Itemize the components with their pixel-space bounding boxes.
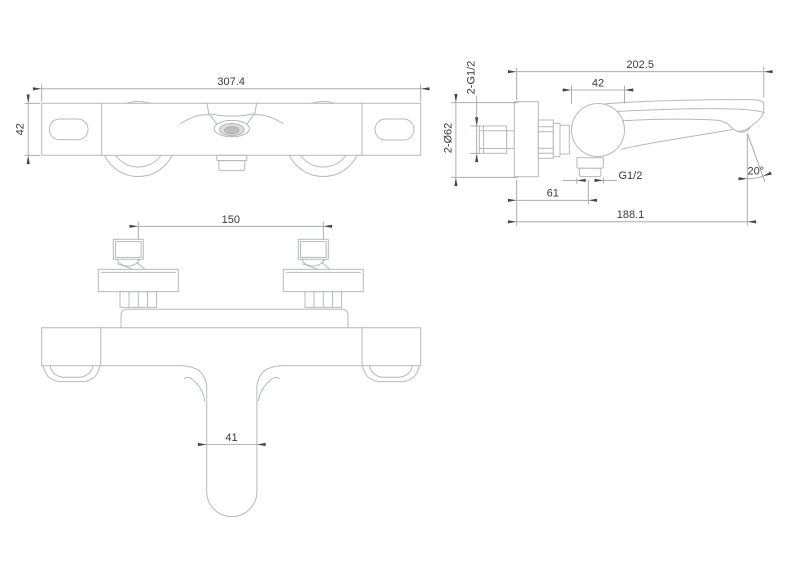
dim-top-centers: 150: [138, 214, 323, 227]
dim-top-spout-width-label: 41: [225, 432, 237, 444]
dim-front-width-label: 307.4: [217, 76, 245, 88]
dim-side-inlet-thread-label: 2-G1/2: [466, 61, 478, 95]
dim-side-overall: 202.5: [517, 59, 764, 100]
hose-outlet-front: [217, 155, 247, 170]
dim-top-spout-width: 41: [207, 432, 257, 445]
dim-side-body-label: 42: [592, 77, 604, 89]
inlet-connector-right: [283, 222, 363, 308]
dim-side-offset: 61: [517, 180, 589, 226]
dim-side-offset-label: 61: [547, 188, 559, 200]
drawing-page: 307.4 42: [0, 0, 800, 566]
wall-escutcheon-side: [514, 102, 538, 177]
dim-side-reach-label: 188.1: [617, 209, 645, 221]
inlet-connector-left: [98, 222, 178, 308]
mixer-bar-top: [42, 328, 421, 366]
dim-side-escutcheon-label: 2-Ø62: [443, 123, 455, 154]
dim-side-angle: 20°: [747, 133, 765, 181]
dim-front-width: 307.4: [42, 76, 421, 101]
wall-connector-side: [479, 102, 569, 177]
dim-side-outlet-thread-label: G1/2: [619, 170, 643, 182]
dim-front-height: 42: [15, 103, 40, 155]
dim-side-overall-label: 202.5: [626, 59, 654, 71]
side-view: 202.5 2-G1/2 42 2-Ø62: [443, 59, 765, 226]
handle-underside-right: [363, 366, 420, 382]
technical-drawing: 307.4 42: [0, 0, 800, 566]
front-view: 307.4 42: [15, 76, 421, 176]
dim-side-angle-label: 20°: [747, 165, 764, 177]
top-view: 150 41: [42, 214, 421, 517]
dim-front-height-label: 42: [15, 123, 27, 135]
shower-outlet-side: [577, 158, 603, 177]
hex-nut-side: [538, 120, 553, 158]
body-plateau-top: [121, 309, 348, 327]
dim-side-outlet-thread: G1/2: [563, 170, 642, 184]
dim-side-body: 42: [572, 77, 625, 103]
handle-underside-left: [43, 366, 100, 382]
dim-top-centers-label: 150: [222, 214, 240, 226]
dim-side-inlet-thread: 2-G1/2: [466, 61, 480, 154]
